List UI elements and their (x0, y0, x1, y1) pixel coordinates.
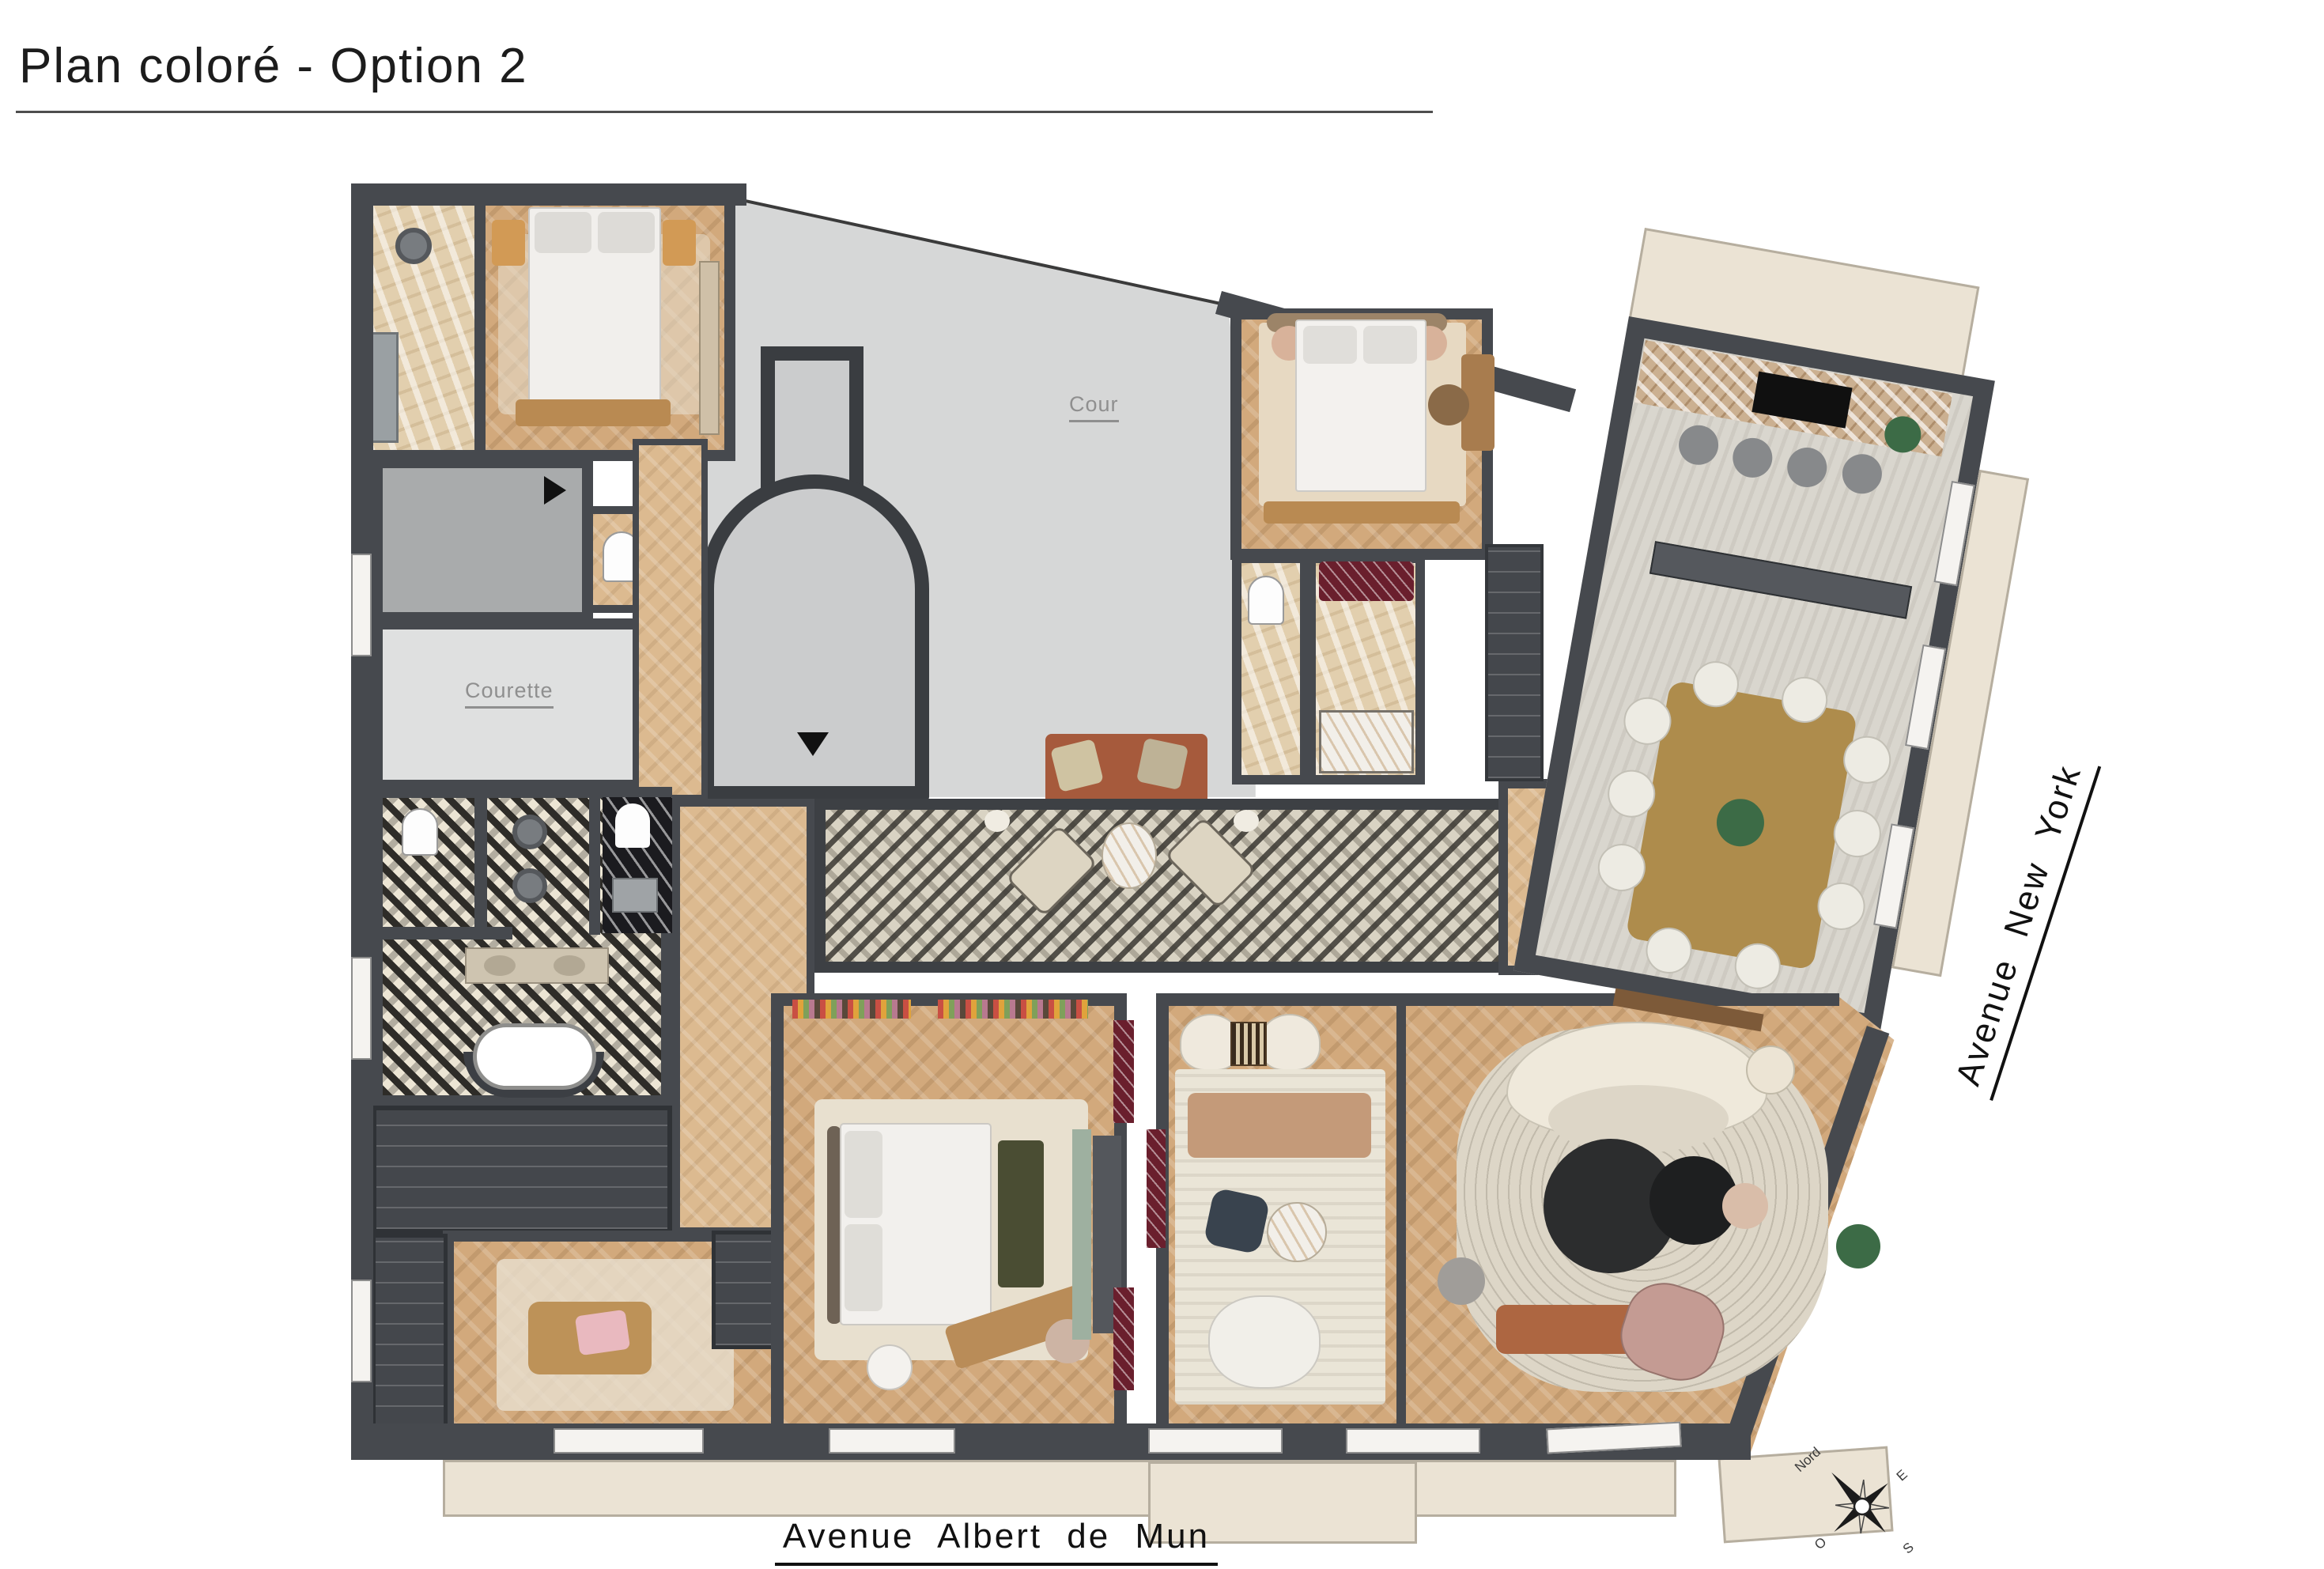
bedroom2-pillow-2 (1363, 326, 1417, 364)
fireplace (1147, 1129, 1166, 1248)
red-niche-bottom (1113, 1287, 1134, 1390)
bath-toilet (402, 808, 438, 856)
bath-partition-2 (589, 791, 600, 935)
window-bottom-3 (1148, 1428, 1283, 1454)
outer-wall-left (351, 183, 373, 1449)
cour-label: Cour (1069, 392, 1119, 422)
stool-1 (1676, 422, 1721, 468)
shower-head-1 (512, 815, 547, 849)
wc2-toilet (1248, 576, 1284, 625)
window-bottom-1 (554, 1428, 704, 1454)
window-bottom-2 (829, 1428, 955, 1454)
closet-row (372, 1106, 672, 1234)
street-label-bottom-wrap: Avenue Albert de Mun (735, 1517, 1257, 1566)
master-bench-green (998, 1140, 1044, 1287)
stair-entry-arrow-icon (797, 732, 829, 756)
balcony-bottom (443, 1460, 1676, 1517)
compass-rose: Nord E O S (1787, 1447, 1937, 1566)
black-wc-sink (612, 878, 658, 913)
pink-garment (575, 1310, 630, 1355)
page-title: Plan coloré - Option 2 (19, 38, 528, 94)
vanity-sink-right (554, 955, 585, 976)
hall-sconce-left (984, 810, 1010, 832)
gray-pouf (1438, 1257, 1485, 1305)
balcony-plant (1836, 1224, 1880, 1268)
bedroom2-bench (1264, 501, 1460, 524)
dressing-wardrobe-left (372, 1234, 448, 1431)
bath2-vanity (1319, 561, 1414, 601)
outer-wall-top (351, 183, 746, 206)
lounge-armchair-2 (1259, 1014, 1321, 1071)
stool-4 (1839, 451, 1885, 497)
entrance-arrow-icon (544, 476, 566, 505)
bath-partition-1 (474, 791, 487, 935)
bookshelf-2 (938, 1000, 1088, 1019)
courette-label: Courette (465, 679, 554, 709)
bedroom1-nightstand-left (492, 220, 525, 266)
entrance-hall (814, 799, 1510, 973)
bathtub (473, 1023, 596, 1090)
bath2-shower (1319, 710, 1414, 773)
master-pillow-2 (845, 1224, 882, 1311)
white-armchair (1208, 1295, 1321, 1389)
coffee-table-marble (1267, 1202, 1327, 1262)
shower-head-2 (512, 868, 547, 903)
side-table-cream (1746, 1045, 1795, 1095)
bedroom2-closets (1485, 544, 1544, 781)
black-wc-toilet (615, 803, 650, 848)
tv-marble-panel (1072, 1129, 1091, 1340)
bedroom1-pillow-right (598, 212, 655, 253)
red-niche-top (1113, 1020, 1134, 1123)
tan-sofa (1188, 1093, 1371, 1158)
side-table-blush (1722, 1183, 1768, 1229)
bookshelf-1 (792, 1000, 911, 1019)
bedroom1-pillow-left (535, 212, 591, 253)
bedroom2-pillow-1 (1303, 326, 1357, 364)
entry-bench-pillow-2 (1136, 738, 1188, 790)
hall-sconce-right (1234, 810, 1259, 832)
corridor-stairs (633, 439, 708, 801)
backgammon-table (1230, 1022, 1267, 1066)
window-left-3 (351, 1280, 372, 1382)
vanity-sink-left (484, 955, 516, 976)
crescent-sofa-cut (1548, 1085, 1729, 1153)
hall-coffee-table (1102, 822, 1157, 889)
bedroom1-wardrobe (699, 261, 720, 435)
bath-partition-3 (378, 927, 512, 940)
dining-console (1649, 541, 1912, 619)
bedroom2-desk-chair (1428, 384, 1469, 425)
title-underline (16, 111, 1433, 113)
dining-kitchen (1513, 316, 1995, 1035)
shower-head-icon (395, 228, 432, 264)
window-left-1 (351, 554, 372, 656)
master-pouf (867, 1344, 913, 1390)
street-label-bottom: Avenue Albert de Mun (775, 1517, 1218, 1566)
stool-3 (1784, 444, 1830, 490)
window-left-2 (351, 957, 372, 1060)
bedroom1-nightstand-right (663, 220, 696, 266)
window-bottom-4 (1346, 1428, 1480, 1454)
floor-plan-page: { "title": "Plan coloré - Option 2", "pl… (0, 0, 2324, 1569)
master-pillow-1 (845, 1131, 882, 1218)
stool-2 (1729, 435, 1775, 481)
bedroom1-bench (516, 399, 671, 426)
